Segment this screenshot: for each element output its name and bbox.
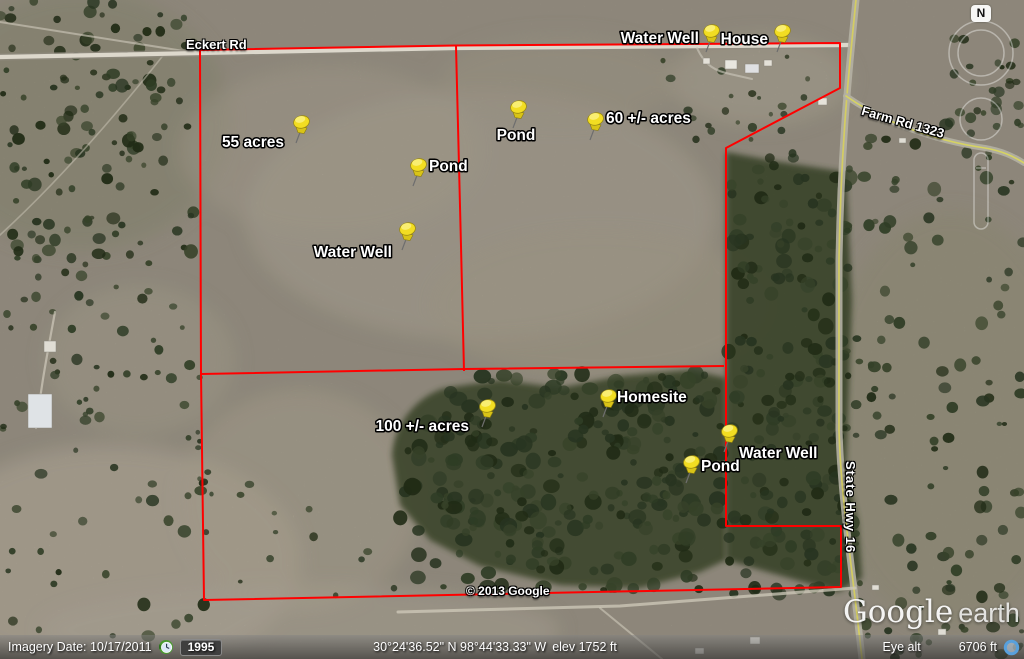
status-bar: Imagery Date: 10/17/2011 1995 30°24'36.5… — [0, 635, 1024, 659]
homesite-label: Homesite — [617, 389, 687, 406]
road-label-state-hwy-16: State Hwy 16 — [843, 461, 858, 553]
imagery-date-text: Imagery Date: 10/17/2011 — [8, 640, 152, 654]
water-well-center-label: Water Well — [314, 244, 392, 261]
acreage-55-label: 55 acres — [222, 134, 284, 151]
elevation-readout: elev 1752 ft — [552, 640, 617, 654]
compass-north-button[interactable]: N — [971, 5, 991, 22]
water-well-south-label: Water Well — [739, 445, 817, 462]
acreage-60-label: 60 +/- acres — [606, 110, 691, 127]
house-label: House — [721, 31, 769, 48]
coordinates-readout: 30°24'36.52" N 98°44'33.33" W — [373, 640, 546, 654]
eye-alt-value: 6706 ft — [959, 640, 997, 654]
road-label-eckert-rd: Eckert Rd — [186, 37, 247, 52]
terrain — [0, 0, 1024, 659]
satellite-map[interactable]: Water WellHouse55 acresPond60 +/- acresP… — [0, 0, 1024, 659]
water-well-north-label: Water Well — [621, 30, 699, 47]
google-earth-logo: Googleearth — [843, 594, 1020, 630]
eye-alt-label: Eye alt — [883, 640, 921, 654]
historical-imagery-clock-icon[interactable] — [158, 639, 174, 655]
pond-center-label: Pond — [429, 158, 468, 175]
pond-south-label: Pond — [701, 458, 740, 475]
copyright-watermark: © 2013 Google — [466, 584, 550, 598]
logo-google-text: Google — [843, 594, 953, 630]
logo-earth-text: earth — [958, 598, 1020, 628]
pond-north-label: Pond — [497, 127, 536, 144]
streaming-indicator-icon — [1003, 639, 1020, 656]
timeline-year-badge[interactable]: 1995 — [180, 639, 223, 656]
google-earth-viewport[interactable]: Water WellHouse55 acresPond60 +/- acresP… — [0, 0, 1024, 659]
acreage-100-label: 100 +/- acres — [375, 418, 469, 435]
